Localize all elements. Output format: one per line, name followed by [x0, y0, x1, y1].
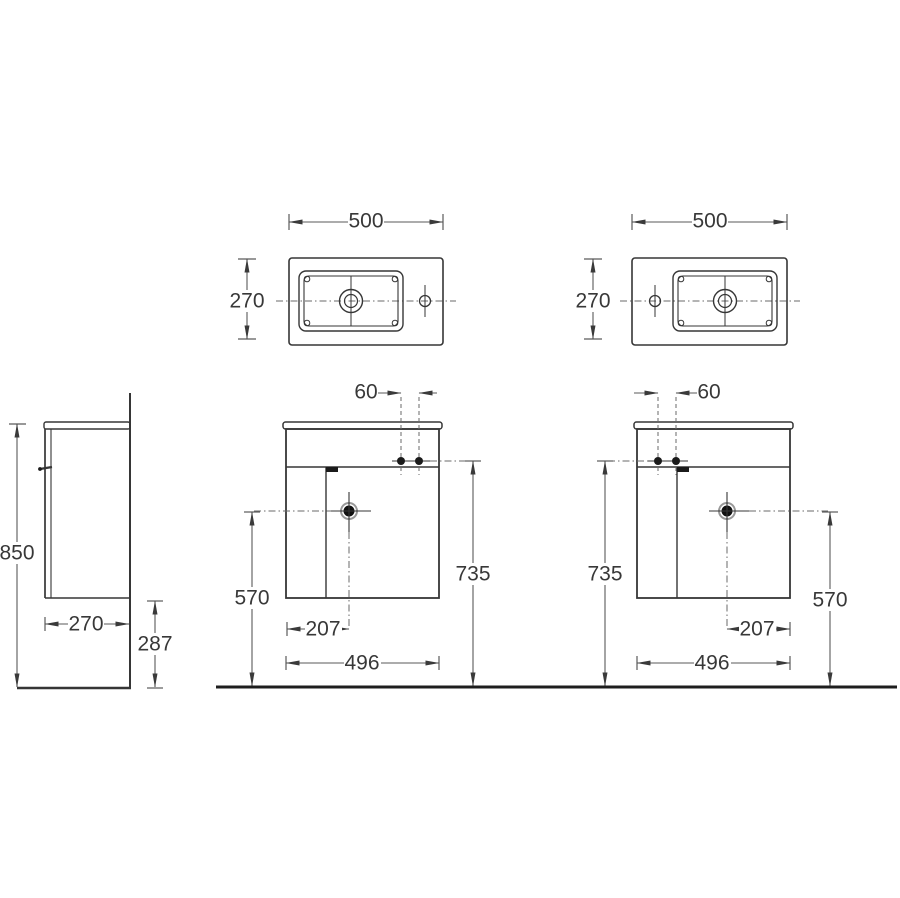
cabinet-body: [637, 429, 790, 598]
bowl-corner-radius-mark: [766, 276, 772, 282]
dim-label-width: 500: [348, 210, 383, 233]
door-handle: [677, 467, 689, 472]
tap-hole-marker: [397, 457, 405, 465]
dim-label-rim-height: 735: [455, 563, 490, 586]
tap-hole-marker: [415, 457, 423, 465]
cabinet-body: [286, 429, 439, 598]
dim-label-depth: 270: [229, 290, 264, 313]
dim-label-tap-spacing: 60: [354, 381, 377, 404]
bowl-corner-radius-mark: [678, 276, 684, 282]
countertop: [283, 422, 442, 429]
top-view-right: 500 270: [575, 210, 800, 345]
door-handle-tip: [38, 467, 42, 471]
dim-label-width: 496: [694, 652, 729, 675]
side-view: 850 270 287: [0, 393, 173, 689]
dim-label-drain-offset: 207: [305, 618, 340, 641]
dim-label-rim-height: 735: [587, 563, 622, 586]
dim-label-height: 850: [0, 542, 35, 565]
front-view-right: 60 735 570 207 496: [587, 381, 848, 686]
dim-label-depth: 270: [575, 290, 610, 313]
tap-hole-marker: [654, 457, 662, 465]
bowl-corner-radius-mark: [392, 276, 398, 282]
dim-label-drain-offset: 207: [739, 618, 774, 641]
bowl-corner-radius-mark: [304, 320, 310, 326]
door-handle: [326, 467, 338, 472]
bowl-corner-radius-mark: [766, 320, 772, 326]
dim-label-clearance: 287: [137, 633, 172, 656]
top-view-left: 500 270: [229, 210, 456, 345]
vanity-technical-drawing: 500 270 500 270: [0, 0, 900, 898]
countertop-profile: [44, 422, 130, 429]
bowl-corner-radius-mark: [392, 320, 398, 326]
tap-hole-marker: [672, 457, 680, 465]
bowl-corner-radius-mark: [678, 320, 684, 326]
bowl-corner-radius-mark: [304, 276, 310, 282]
dim-label-tap-spacing: 60: [697, 381, 720, 404]
dim-label-drain-height: 570: [234, 587, 269, 610]
dim-label-depth: 270: [68, 613, 103, 636]
dim-label-drain-height: 570: [812, 589, 847, 612]
technical-drawing-page: 500 270 500 270: [0, 0, 900, 898]
dim-label-width: 500: [692, 210, 727, 233]
front-view-left: 60 735 570 207 496: [234, 381, 491, 686]
dim-label-width: 496: [344, 652, 379, 675]
